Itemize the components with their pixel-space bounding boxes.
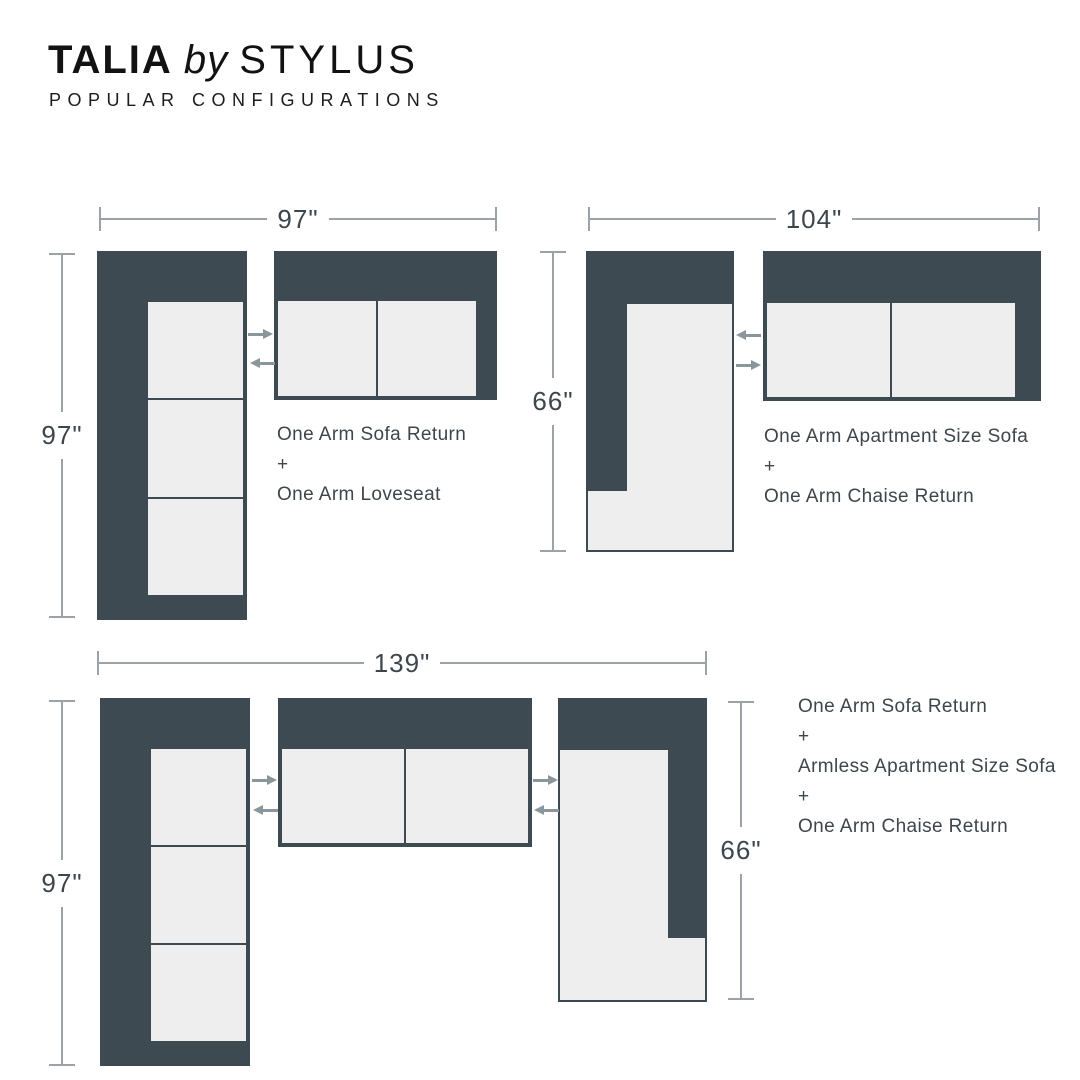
cushion xyxy=(151,749,246,845)
config1-height-label: 97" xyxy=(41,412,82,459)
config3-height-dimension-right: 66" xyxy=(728,701,754,1000)
config1-width-dimension: 97" xyxy=(99,207,497,231)
title-connector: by xyxy=(184,38,228,82)
config2-description: One Arm Apartment Size Sofa + One Arm Ch… xyxy=(764,422,1028,512)
cushion xyxy=(376,301,476,396)
dimension-line xyxy=(61,255,63,412)
description-line: One Arm Sofa Return xyxy=(277,420,466,450)
config3-height-label-right: 66" xyxy=(720,827,761,874)
dimension-line xyxy=(329,218,495,220)
config2-height-label: 66" xyxy=(532,378,573,425)
config3-height-label-left: 97" xyxy=(41,860,82,907)
chaise-seat xyxy=(627,304,732,550)
chaise-seat-foot xyxy=(668,938,705,1000)
chaise-seat xyxy=(560,750,668,1000)
description-line: + xyxy=(764,452,1028,482)
arrow-right-icon xyxy=(248,329,273,339)
dimension-line xyxy=(552,253,554,378)
arrow-left-icon xyxy=(253,805,278,815)
config2-width-dimension: 104" xyxy=(588,207,1040,231)
config2-height-dimension: 66" xyxy=(540,251,566,552)
cushion xyxy=(890,303,1015,397)
cushion xyxy=(151,845,246,943)
dimension-line xyxy=(61,702,63,860)
dimension-line xyxy=(552,425,554,550)
config2-width-label: 104" xyxy=(776,204,853,235)
cushion-group xyxy=(276,299,478,398)
dimension-line xyxy=(740,874,742,998)
dimension-line xyxy=(61,907,63,1065)
maker-name: STYLUS xyxy=(239,38,419,82)
dimension-tick xyxy=(49,616,75,618)
config1-one-arm-sofa-return xyxy=(97,251,247,620)
config2-one-arm-apartment-size-sofa xyxy=(763,251,1041,401)
description-line: + xyxy=(798,722,1056,752)
config2-one-arm-chaise-return xyxy=(586,251,734,552)
description-line: One Arm Chaise Return xyxy=(798,812,1056,842)
config1-one-arm-loveseat xyxy=(274,251,497,400)
dimension-line xyxy=(101,218,267,220)
dimension-line xyxy=(740,703,742,827)
arrow-right-icon xyxy=(252,775,277,785)
description-line: + xyxy=(798,782,1056,812)
page-subtitle: POPULAR CONFIGURATIONS xyxy=(49,90,445,111)
dimension-line xyxy=(99,662,364,664)
arrow-right-icon xyxy=(736,360,761,370)
cushion xyxy=(151,943,246,1041)
config3-description: One Arm Sofa Return + Armless Apartment … xyxy=(798,692,1056,842)
description-line: One Arm Chaise Return xyxy=(764,482,1028,512)
dimension-tick xyxy=(49,1064,75,1066)
configuration-sheet: TALIA by STYLUS POPULAR CONFIGURATIONS 9… xyxy=(0,0,1080,1080)
config3-width-label: 139" xyxy=(364,648,441,679)
brand-name: TALIA xyxy=(48,38,173,82)
page-title: TALIA by STYLUS xyxy=(48,38,419,83)
chaise-seat-foot xyxy=(588,491,627,550)
dimension-tick xyxy=(705,651,707,675)
arrow-left-icon xyxy=(736,330,761,340)
dimension-line xyxy=(852,218,1038,220)
config3-armless-apartment-size-sofa xyxy=(278,698,532,847)
cushion-group xyxy=(280,747,530,845)
description-line: One Arm Sofa Return xyxy=(798,692,1056,722)
arrow-right-icon xyxy=(533,775,558,785)
dimension-tick xyxy=(495,207,497,231)
cushion-group xyxy=(149,747,248,1043)
config3-one-arm-sofa-return xyxy=(100,698,250,1066)
cushion-group xyxy=(765,301,1017,399)
cushion-group xyxy=(146,300,245,597)
dimension-tick xyxy=(728,998,754,1000)
description-line: One Arm Apartment Size Sofa xyxy=(764,422,1028,452)
config1-description: One Arm Sofa Return + One Arm Loveseat xyxy=(277,420,466,510)
cushion xyxy=(148,398,243,496)
description-line: One Arm Loveseat xyxy=(277,480,466,510)
description-line: + xyxy=(277,450,466,480)
cushion xyxy=(148,302,243,398)
dimension-tick xyxy=(1038,207,1040,231)
dimension-line xyxy=(61,459,63,616)
cushion xyxy=(767,303,890,397)
cushion xyxy=(404,749,528,843)
config3-height-dimension-left: 97" xyxy=(49,700,75,1066)
arrow-left-icon xyxy=(250,358,275,368)
cushion xyxy=(282,749,404,843)
config3-one-arm-chaise-return xyxy=(558,698,707,1002)
config1-width-label: 97" xyxy=(267,204,328,235)
config3-width-dimension: 139" xyxy=(97,651,707,675)
dimension-line xyxy=(590,218,776,220)
dimension-tick xyxy=(540,550,566,552)
dimension-line xyxy=(440,662,705,664)
cushion xyxy=(278,301,376,396)
arrow-left-icon xyxy=(534,805,559,815)
config1-height-dimension: 97" xyxy=(49,253,75,618)
cushion xyxy=(148,497,243,595)
description-line: Armless Apartment Size Sofa xyxy=(798,752,1056,782)
